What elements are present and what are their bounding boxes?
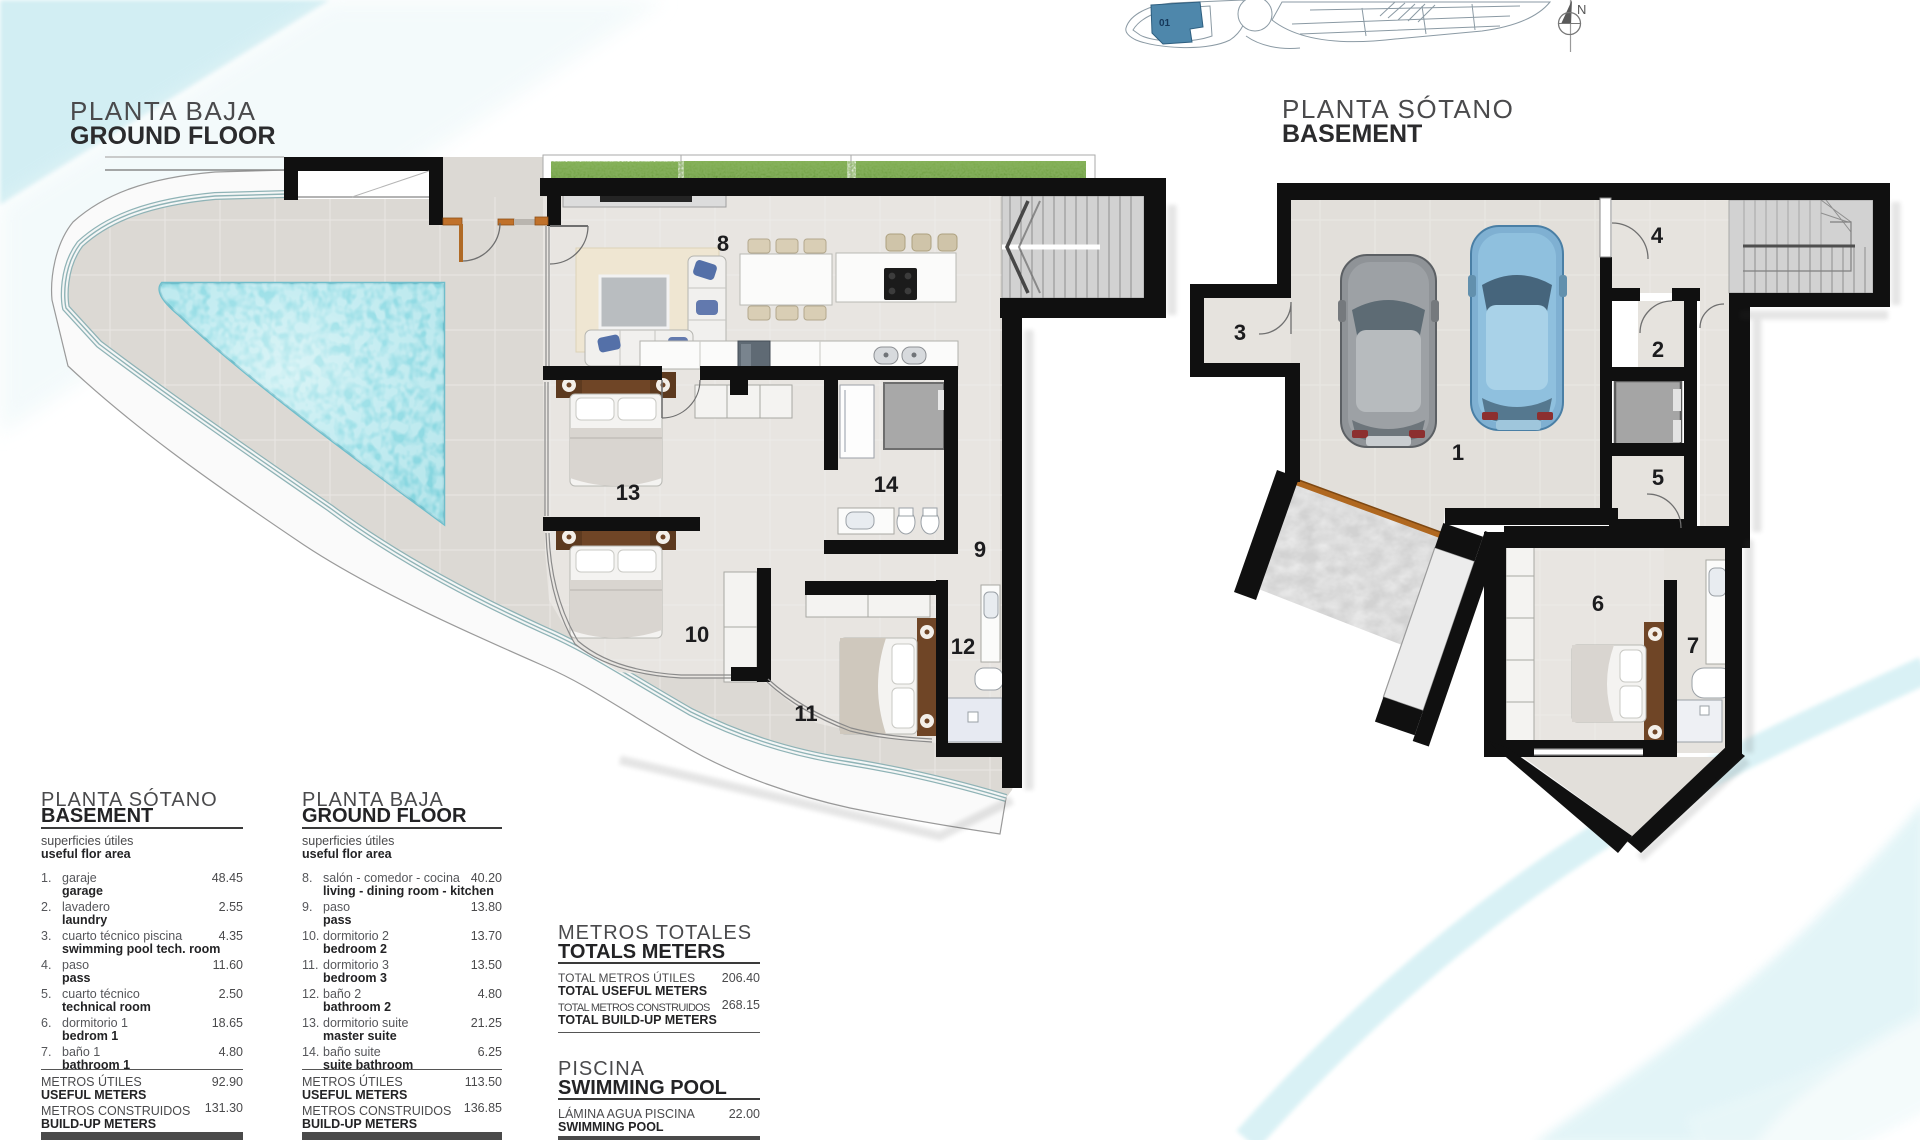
svg-text:14: 14	[874, 472, 899, 497]
svg-text:7: 7	[1687, 633, 1699, 658]
svg-text:11: 11	[794, 701, 817, 726]
svg-text:12: 12	[951, 634, 975, 659]
svg-text:1: 1	[1452, 440, 1464, 465]
svg-text:6: 6	[1592, 591, 1604, 616]
svg-text:2: 2	[1652, 337, 1664, 362]
svg-text:3: 3	[1234, 320, 1246, 345]
svg-text:9: 9	[974, 537, 986, 562]
svg-text:8: 8	[717, 231, 729, 256]
svg-text:N: N	[1577, 2, 1586, 17]
svg-text:13: 13	[616, 480, 640, 505]
svg-text:10: 10	[685, 622, 709, 647]
svg-text:01: 01	[1159, 18, 1171, 29]
svg-text:4: 4	[1651, 223, 1664, 248]
svg-text:5: 5	[1652, 465, 1664, 490]
